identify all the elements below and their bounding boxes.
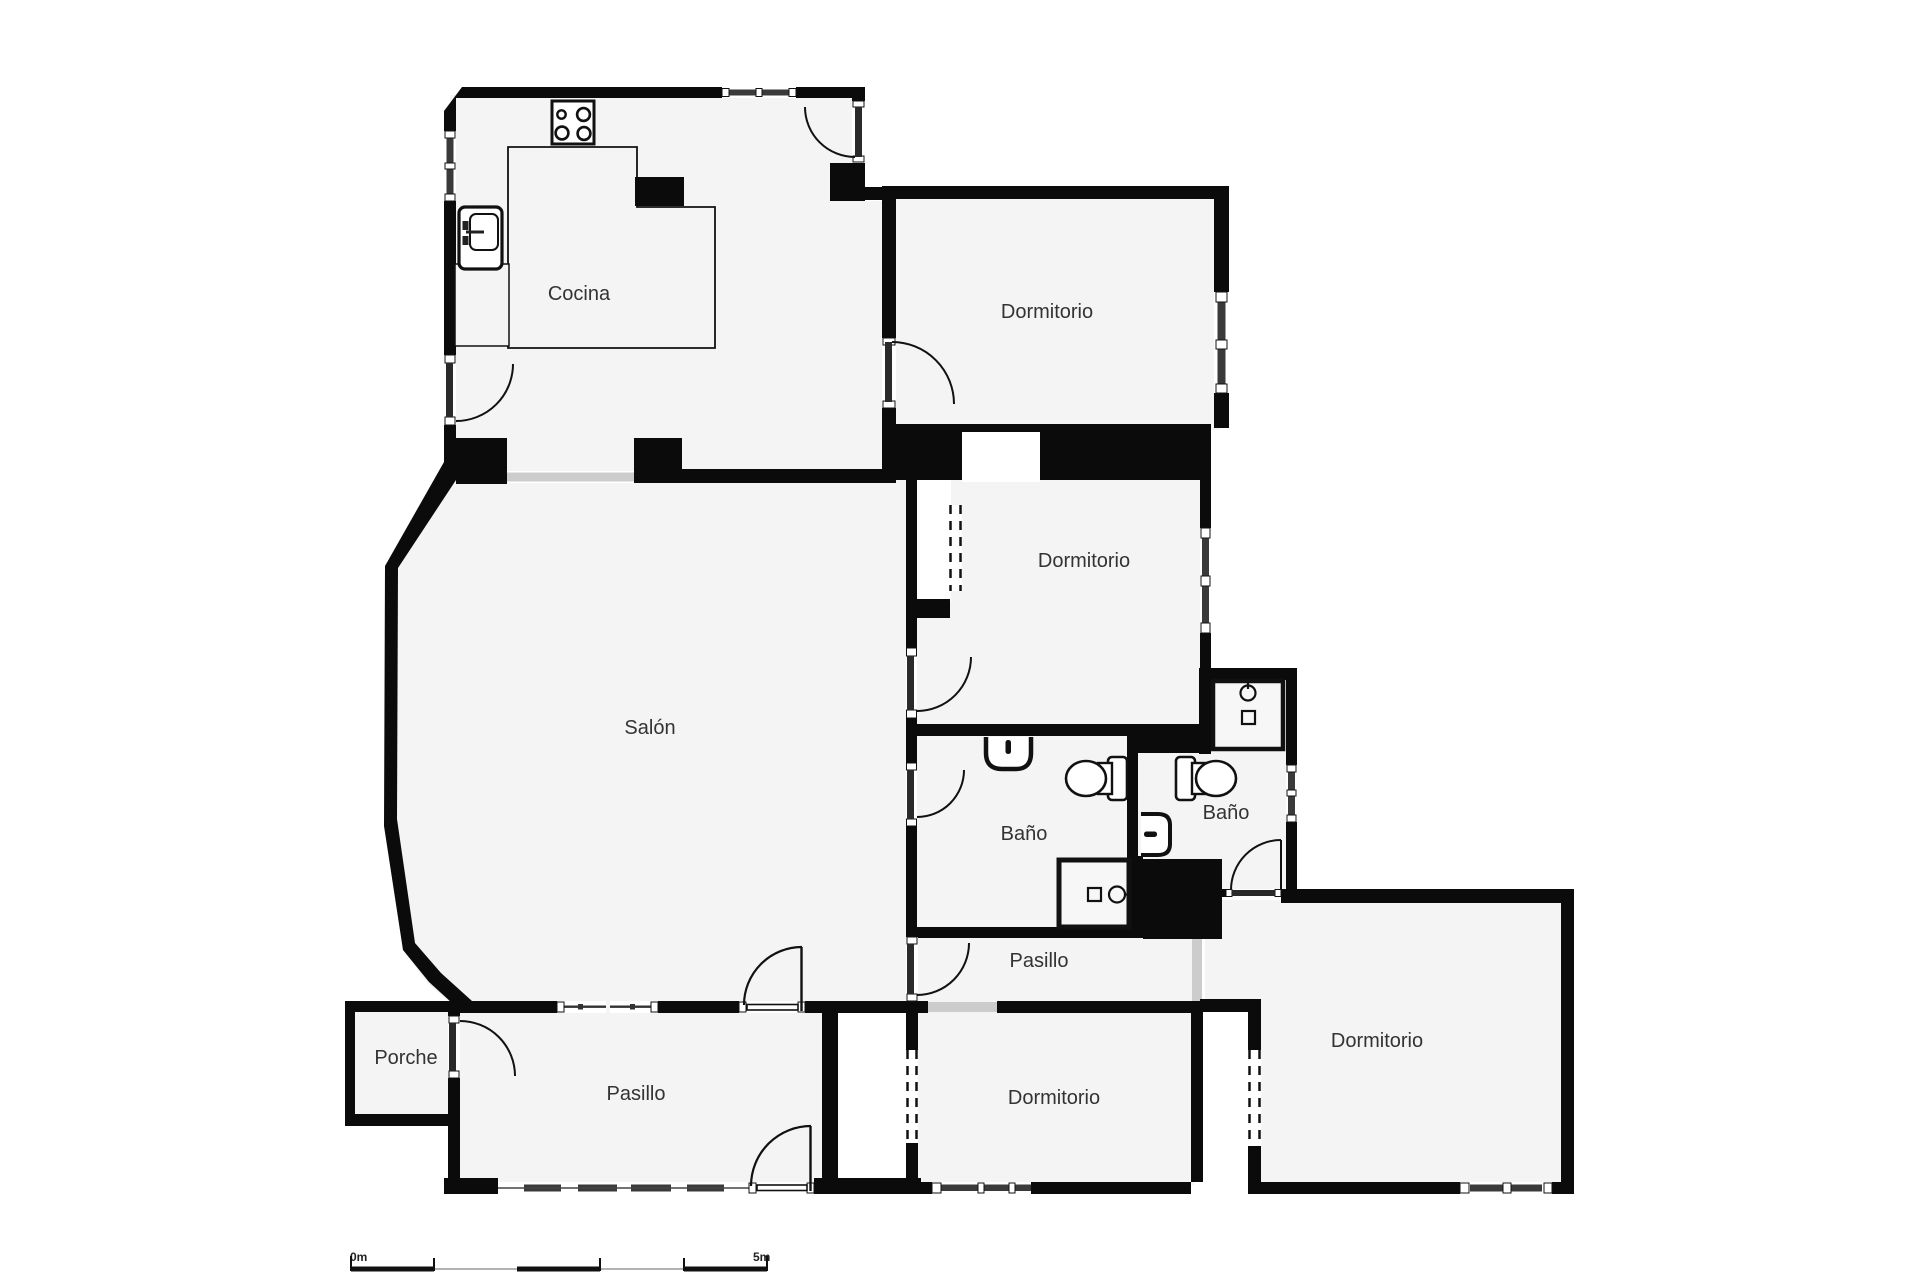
svg-text:Pasillo: Pasillo xyxy=(1010,950,1069,972)
svg-text:Pasillo: Pasillo xyxy=(607,1083,666,1105)
svg-text:Baño: Baño xyxy=(1001,823,1048,845)
svg-text:Porche: Porche xyxy=(374,1047,437,1069)
svg-text:Dormitorio: Dormitorio xyxy=(1331,1030,1423,1052)
svg-text:Baño: Baño xyxy=(1203,802,1250,824)
svg-text:Salón: Salón xyxy=(624,717,675,739)
svg-text:Dormitorio: Dormitorio xyxy=(1038,550,1130,572)
svg-text:Cocina: Cocina xyxy=(548,283,611,305)
svg-text:Dormitorio: Dormitorio xyxy=(1008,1087,1100,1109)
svg-text:0m: 0m xyxy=(350,1250,367,1264)
svg-text:Dormitorio: Dormitorio xyxy=(1001,301,1093,323)
